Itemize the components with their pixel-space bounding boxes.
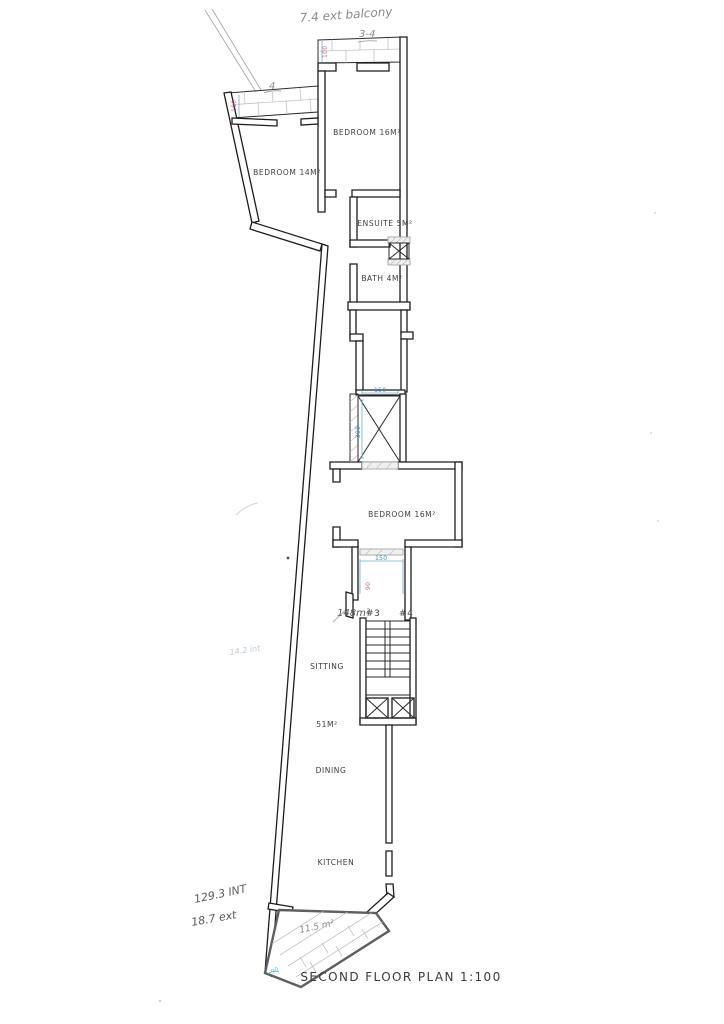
dim-lift-width: 150	[374, 387, 386, 394]
dim-corridor-door: 90	[365, 582, 372, 590]
plan-title: SECOND FLOOR PLAN 1:100	[300, 970, 501, 984]
room-label-dining: DINING	[316, 766, 347, 775]
dim-left-balcony-depth: 100	[231, 100, 238, 112]
wall-ensuite-top-a	[325, 190, 336, 197]
staircase	[366, 621, 410, 695]
pencil-tick	[358, 41, 377, 42]
wall-corridor-left-jog	[350, 334, 363, 341]
wall-right-upper	[400, 37, 407, 310]
faint-area-note: 14.2 int	[229, 644, 262, 657]
unit-area-note: 148m²	[337, 608, 370, 619]
dim-corridor-width: 150	[375, 555, 387, 562]
wall-bedroom-mid-top-a	[330, 462, 362, 469]
room-label-kitchen: KITCHEN	[318, 858, 355, 867]
wall-spine-a	[386, 725, 392, 843]
wall-stair-left	[360, 618, 366, 724]
wall-stair-right	[410, 618, 416, 724]
wall-balcony-sill-left	[318, 63, 336, 71]
left-balcony-width-note: 4	[269, 81, 275, 92]
walls	[224, 37, 462, 976]
wall-bedroom-mid-top-b	[398, 462, 462, 469]
wall-bedroom-mid-left-a	[333, 469, 340, 482]
scan-speck	[650, 432, 652, 434]
service-ducts	[366, 698, 414, 718]
wall-corridor-left-b	[356, 341, 363, 392]
wall-bedroom14-bottom	[250, 222, 322, 251]
wall-left-upper	[224, 92, 259, 223]
scan-speck	[654, 212, 656, 214]
floor-plan-drawing: BEDROOM 16M² BEDROOM 14M² ENSUITE 5M² BA…	[0, 0, 724, 1024]
wall-ensuite-bath-divider	[350, 240, 390, 247]
ink-dot	[287, 557, 290, 560]
unit-number-3: #3	[366, 609, 380, 619]
floor-plan-page: BEDROOM 16M² BEDROOM 14M² ENSUITE 5M² BA…	[0, 0, 724, 1024]
room-label-bedroom-16-top: BEDROOM 16M²	[333, 128, 401, 137]
pencil-annotations	[159, 9, 659, 1002]
unit-number-4: #4	[399, 609, 413, 619]
dim-top-balcony-depth: 100	[322, 46, 329, 58]
wall-balcony-sill-right	[357, 63, 389, 71]
wall-corridor-right-b	[401, 339, 407, 392]
wall-bath-bottom	[348, 302, 410, 310]
wall-corridor-right-jog	[401, 332, 413, 339]
room-label-bedroom-14: BEDROOM 14M²	[253, 168, 321, 177]
wall-bedroom-mid-bottom-a	[333, 540, 358, 547]
external-area-note: 18.7 ext	[190, 908, 238, 929]
duct-cross-icon	[366, 698, 388, 718]
room-label-bath: BATH 4M²	[361, 274, 402, 283]
pencil-guide-line	[212, 9, 261, 90]
stair-treads	[366, 629, 410, 677]
door-sills	[360, 462, 403, 594]
ext-balcony-note: 7.4 ext balcony	[299, 4, 394, 25]
wall-bedroom-mid-right	[455, 462, 462, 547]
room-label-sitting-area: 51M²	[316, 720, 337, 729]
wall-spine-b	[386, 851, 392, 876]
wall-lift-right	[400, 394, 406, 462]
dim-lift-depth: 300	[355, 426, 362, 438]
top-balcony	[318, 37, 402, 63]
wall-bedroom-mid-bottom-b	[405, 540, 462, 547]
wall-bedroom14-top-a	[232, 118, 277, 126]
room-label-ensuite: ENSUITE 5M²	[357, 219, 412, 228]
top-balcony-hatch	[318, 38, 402, 63]
lift-cross-icon	[358, 396, 400, 462]
scan-speck	[657, 520, 659, 522]
scan-speck	[159, 1000, 161, 1002]
wall-corridor2-left	[352, 547, 358, 600]
dimension-labels: 150 300 150 90 100 100 90	[231, 46, 387, 976]
wall-corridor-right-a	[401, 310, 407, 334]
wall-bedroom14-top-b	[301, 118, 318, 125]
pencil-guide-line	[205, 10, 256, 92]
room-label-sitting: SITTING	[310, 662, 344, 671]
wall-stair-bottom	[360, 718, 416, 725]
handwritten-notes: 7.4 ext balcony 3-4 4 148m² #3 #4 11.5 m…	[190, 4, 413, 935]
internal-area-note: 129.3 INT	[193, 882, 249, 906]
faint-erased-mark	[236, 503, 258, 515]
wall-bedroom-divider	[318, 71, 325, 212]
room-label-bedroom-16-mid: BEDROOM 16M²	[368, 510, 436, 519]
wall-ensuite-top-b	[352, 190, 400, 197]
top-balcony-width-note: 3-4	[359, 29, 375, 40]
